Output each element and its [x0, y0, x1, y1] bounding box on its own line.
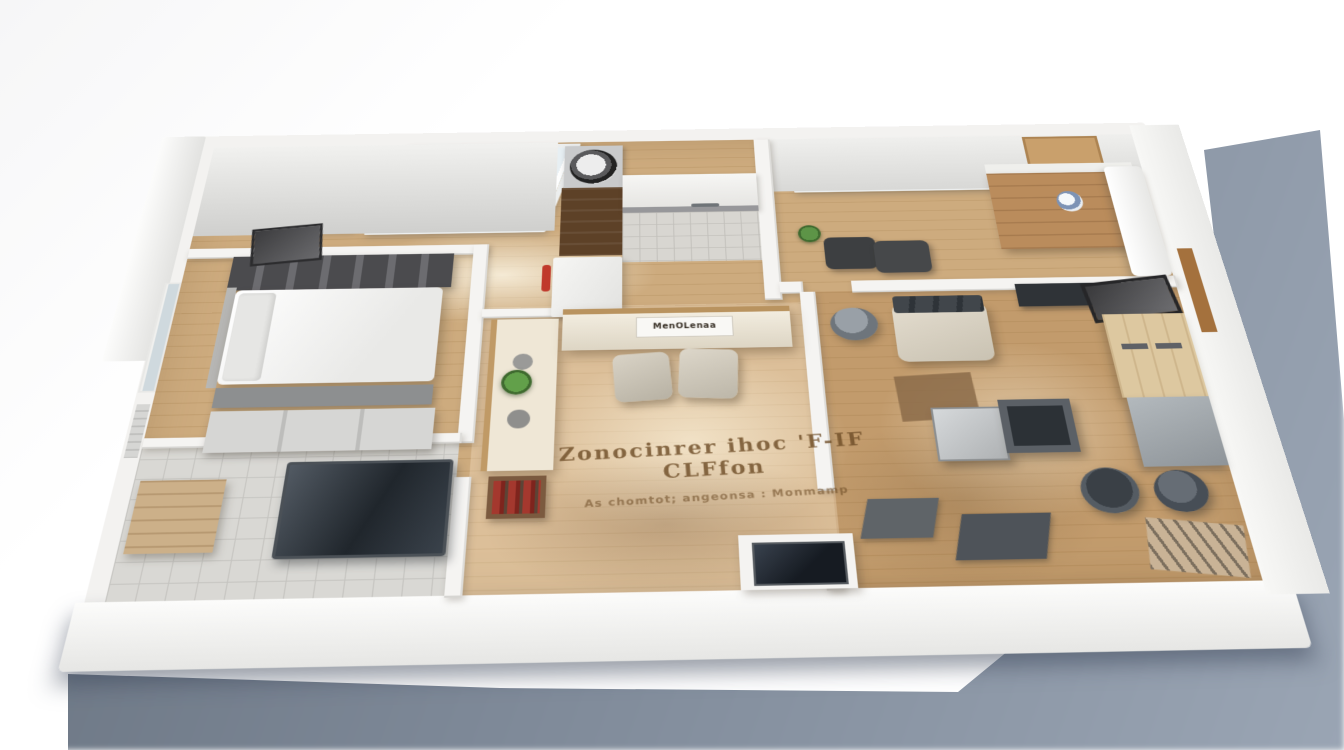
isometric-scene: MenOLenaa Zonocinrer ihoc 'F-IF CLFfon A… [80, 123, 1289, 621]
wall-panel [1022, 136, 1105, 167]
floor-mat [956, 513, 1051, 561]
kitchen-tall-cabinet [559, 187, 622, 256]
sliding-door-dresser [202, 408, 435, 453]
washing-machine [564, 145, 623, 188]
decor-object [512, 354, 533, 370]
decorative-mat [1145, 517, 1251, 578]
kitchen-backsplash-tiles [622, 211, 762, 263]
double-bed [217, 287, 444, 385]
dining-chair [678, 348, 738, 398]
washing-machine-door [569, 149, 617, 184]
sideboard: MenOLenaa [562, 306, 793, 351]
armchair-cushions [892, 295, 985, 313]
coffee-table-light [930, 406, 1010, 461]
apartment-render-canvas: MenOLenaa Zonocinrer ihoc 'F-IF CLFfon A… [0, 0, 1344, 750]
sideboard-label-text: MenOLenaa [653, 322, 717, 332]
porcelain-vase [1054, 191, 1085, 212]
coffee-table-dark [997, 399, 1081, 454]
bed-bench [212, 384, 434, 408]
office-chair [823, 237, 878, 269]
wooden-bench [123, 479, 227, 554]
tv-niche-wall [738, 533, 858, 590]
tv-screen [752, 541, 849, 586]
shower-glass-panel [271, 459, 453, 559]
floor-mat [861, 498, 939, 539]
wall-art-frame [250, 223, 323, 266]
decor-object [507, 409, 531, 428]
fire-extinguisher [541, 265, 551, 292]
kitchen-faucet [691, 203, 719, 207]
apartment-floor-plan: MenOLenaa Zonocinrer ihoc 'F-IF CLFfon A… [80, 123, 1289, 621]
cabinet-handle [1121, 343, 1148, 349]
potted-plant [797, 225, 821, 242]
sideboard-label-plate: MenOLenaa [636, 316, 734, 338]
dining-chair [612, 351, 673, 402]
cabinet-handle [1155, 343, 1183, 349]
office-chair [873, 240, 933, 273]
sloped-ceiling-left [193, 143, 558, 237]
armchair [891, 303, 996, 362]
